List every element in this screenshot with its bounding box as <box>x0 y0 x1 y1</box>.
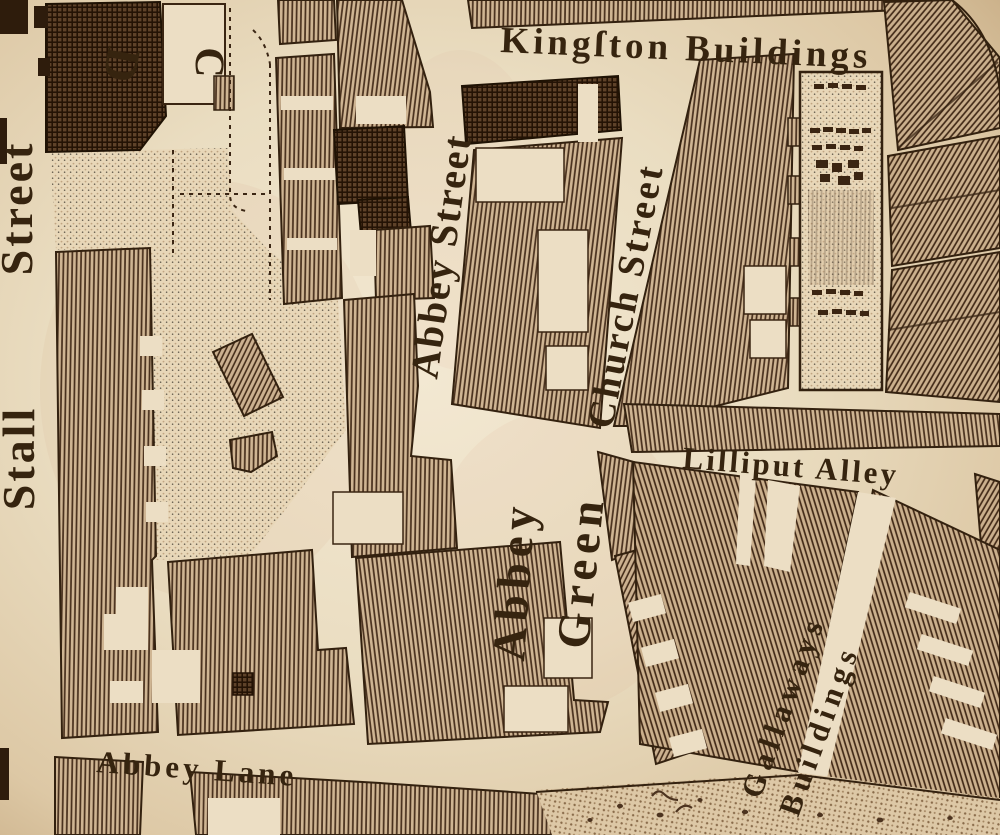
historic-map: Kingſton Buildings Street Stall Abbey St… <box>0 0 1000 835</box>
courtyard <box>144 446 166 466</box>
courtyard <box>750 320 786 358</box>
courtyard <box>116 587 148 614</box>
building-block-dark <box>334 126 408 204</box>
courtyard <box>152 650 200 703</box>
courtyard <box>284 168 336 180</box>
building-block <box>888 136 1000 266</box>
courtyard <box>744 266 786 314</box>
large-public-building <box>788 72 882 390</box>
courtyard <box>578 84 598 142</box>
courtyard <box>546 346 588 390</box>
courtyard <box>140 336 162 356</box>
label-stall-street-word1: Stall <box>0 406 44 510</box>
label-stall-street-word2: Street <box>0 141 42 276</box>
courtyard <box>538 230 588 332</box>
key-letter-c: C <box>185 46 232 78</box>
courtyard <box>504 686 568 732</box>
courtyard <box>356 96 406 124</box>
building-block <box>56 248 158 738</box>
courtyard <box>476 148 564 202</box>
building-block-dark <box>233 673 253 695</box>
courtyard <box>146 502 168 522</box>
map-canvas: Kingſton Buildings Street Stall Abbey St… <box>0 0 1000 835</box>
courtyard <box>281 96 333 110</box>
courtyard <box>110 681 143 703</box>
building-inner-shading <box>808 190 874 285</box>
courtyard <box>208 798 280 835</box>
building-block <box>278 0 336 44</box>
courtyard <box>333 492 403 544</box>
courtyard <box>287 238 337 250</box>
courtyard <box>142 390 164 410</box>
courtyard <box>350 230 376 276</box>
courtyard <box>104 614 148 650</box>
